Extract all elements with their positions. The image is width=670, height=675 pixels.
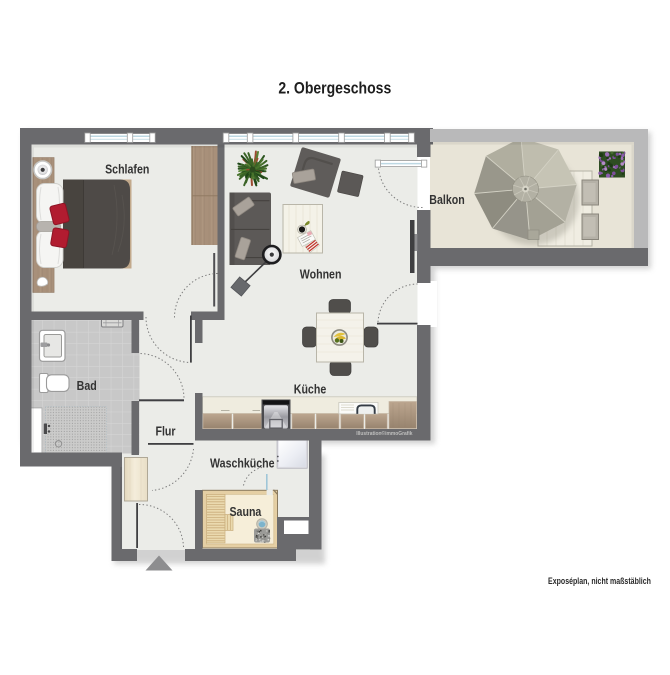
svg-text:2. Obergeschoss: 2. Obergeschoss	[278, 79, 391, 97]
svg-text:Balkon: Balkon	[429, 193, 464, 207]
svg-text:Schlafen: Schlafen	[105, 163, 149, 177]
svg-text:Küche: Küche	[294, 383, 327, 397]
svg-text:Sauna: Sauna	[229, 505, 261, 519]
svg-text:Bad: Bad	[77, 379, 97, 393]
svg-text:Exposéplan, nicht maßstäblich: Exposéplan, nicht maßstäblich	[548, 576, 651, 586]
svg-text:Wohnen: Wohnen	[300, 268, 342, 282]
svg-text:Waschküche: Waschküche	[210, 457, 275, 471]
svg-text:Illustration©immoGrafik: Illustration©immoGrafik	[356, 430, 412, 437]
svg-text:Flur: Flur	[155, 425, 176, 439]
